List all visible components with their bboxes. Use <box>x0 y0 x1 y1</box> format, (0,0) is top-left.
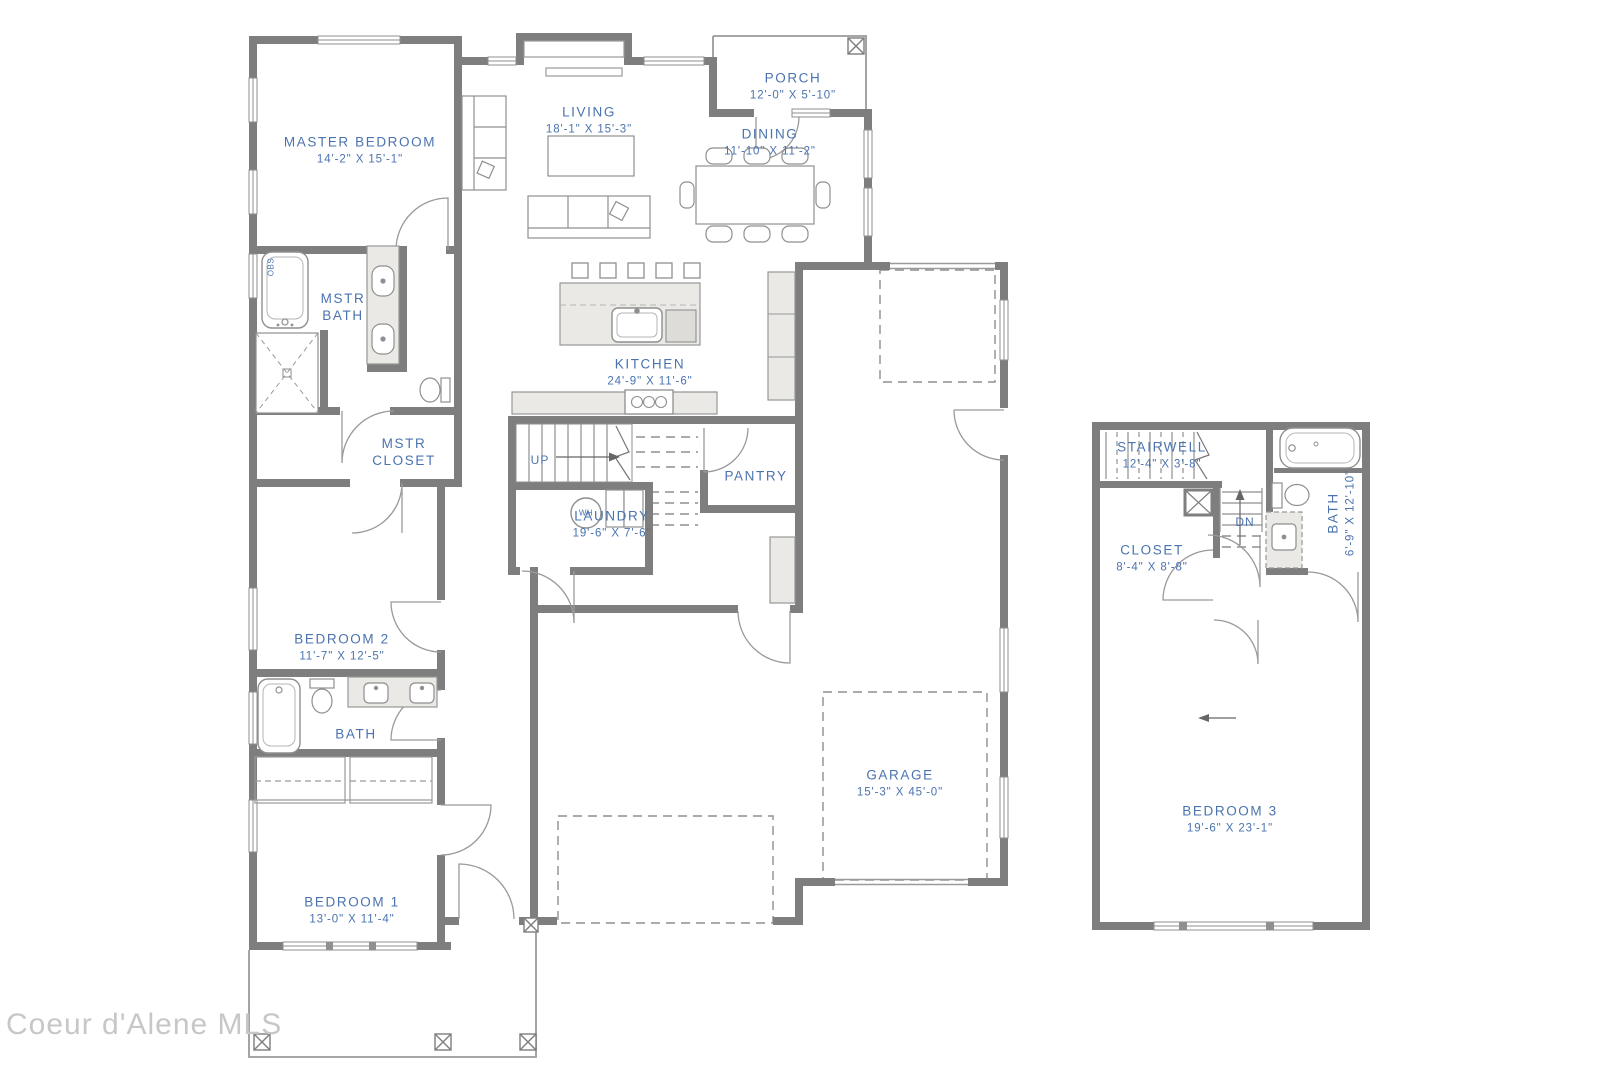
post <box>524 918 538 932</box>
washer <box>606 490 624 527</box>
bath-toilet <box>310 679 334 688</box>
bar-stool <box>656 263 672 278</box>
bedroom3-arrow <box>1198 714 1236 722</box>
mls-watermark: Coeur d'Alene MLS <box>6 1008 282 1042</box>
dining-chair <box>782 148 808 164</box>
mud-bench <box>770 537 795 603</box>
fireplace <box>524 41 624 76</box>
water-heater <box>571 498 601 528</box>
bar-stool <box>684 263 700 278</box>
main-bath-fixtures <box>258 677 437 753</box>
dining-chair <box>744 226 770 242</box>
upper-bath-fixtures <box>1266 428 1360 568</box>
dining-chair <box>744 148 770 164</box>
door-swings <box>342 117 1358 919</box>
master-shower <box>256 333 318 413</box>
chase-box <box>1185 490 1212 515</box>
bar-stool <box>572 263 588 278</box>
sofa <box>528 196 650 238</box>
post <box>435 1034 451 1050</box>
upper-toilet <box>1272 483 1282 508</box>
post <box>848 38 864 54</box>
floor-plan-drawing <box>0 0 1620 1080</box>
kitchen-counter <box>512 392 717 414</box>
kitchen-range <box>625 390 673 414</box>
stair-up-arrow <box>556 453 620 462</box>
dining-chair <box>706 148 732 164</box>
dashed-lines <box>558 270 1262 923</box>
master-bath-fixtures <box>256 246 450 413</box>
bar-stool <box>600 263 616 278</box>
stairs-up-main <box>516 424 632 482</box>
dining-chair <box>816 182 830 208</box>
walls-upper-floor <box>1092 422 1370 930</box>
master-toilet <box>441 378 450 402</box>
dining-chair <box>782 226 808 242</box>
dining-table <box>696 166 814 224</box>
post <box>520 1034 536 1050</box>
dining-chair <box>706 226 732 242</box>
bedroom1-closets <box>255 757 432 803</box>
garage-top-thin <box>835 264 995 885</box>
floor-plan-page: MASTER BEDROOM 14'-2" X 15'-1" LIVING 18… <box>0 0 1620 1080</box>
dryer <box>624 490 643 527</box>
bar-stool <box>628 263 644 278</box>
kitchen-fixtures <box>512 263 795 414</box>
dining-furniture <box>680 148 830 242</box>
dining-chair <box>680 182 694 208</box>
pantry-cabinets <box>768 272 795 400</box>
coffee-table <box>548 136 634 176</box>
